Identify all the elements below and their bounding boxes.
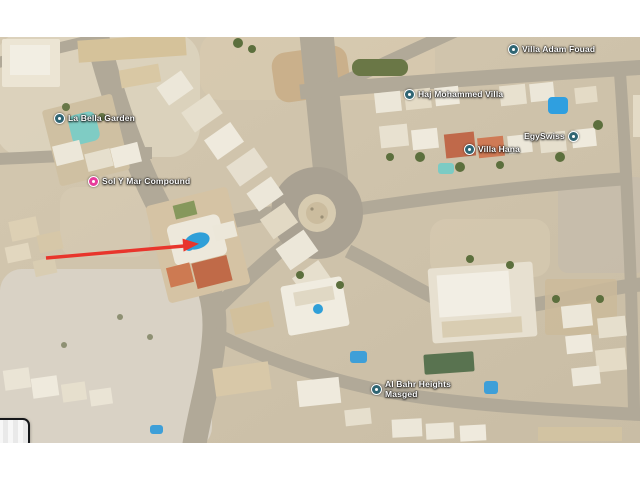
map-label-villa-hana[interactable]: Villa Hana xyxy=(464,144,520,155)
lodging-icon xyxy=(88,176,99,187)
place-label-text-line2: Masged xyxy=(385,390,451,400)
place-label-text: EgySwiss xyxy=(524,132,565,142)
map-canvas xyxy=(0,37,640,443)
mosque-icon xyxy=(371,384,382,395)
map-label-al-bahr-heights-masged[interactable]: Al Bahr Heights Masged xyxy=(371,380,451,399)
place-label-text: Sol Y Mar Compound xyxy=(102,177,190,187)
place-label-text: Haj Mohammed Villa xyxy=(418,90,503,100)
green-field xyxy=(423,351,474,374)
place-label-text: Villa Adam Fouad xyxy=(522,45,595,55)
place-icon xyxy=(404,89,415,100)
place-icon xyxy=(508,44,519,55)
bottom-letterbox xyxy=(0,443,640,480)
villa-pool xyxy=(548,97,568,114)
place-icon xyxy=(54,113,65,124)
map-label-haj-mohammed-villa[interactable]: Haj Mohammed Villa xyxy=(404,89,503,100)
place-icon xyxy=(464,144,475,155)
map-label-villa-adam-fouad[interactable]: Villa Adam Fouad xyxy=(508,44,595,55)
place-label-text: La Bella Garden xyxy=(68,114,135,124)
map-label-sol-y-mar-compound[interactable]: Sol Y Mar Compound xyxy=(88,176,190,187)
screenshot-root: La Bella Garden Sol Y Mar Compound Haj M… xyxy=(0,0,640,480)
map-inset-toggle[interactable] xyxy=(0,418,30,443)
map-label-egyswiss[interactable]: EgySwiss xyxy=(524,131,579,142)
satellite-map[interactable]: La Bella Garden Sol Y Mar Compound Haj M… xyxy=(0,37,640,443)
top-letterbox xyxy=(0,0,640,37)
place-icon xyxy=(568,131,579,142)
place-label-text: Villa Hana xyxy=(478,145,520,155)
map-label-la-bella-garden[interactable]: La Bella Garden xyxy=(54,113,135,124)
